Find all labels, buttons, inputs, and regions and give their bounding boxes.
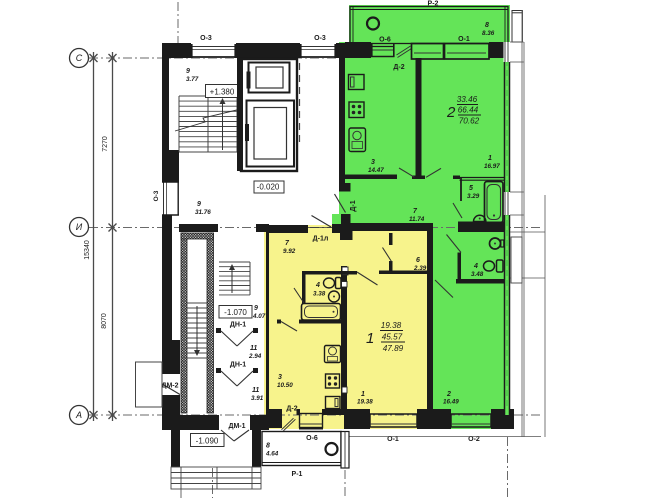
svg-text:2.94: 2.94	[248, 353, 262, 360]
svg-text:О-3: О-3	[200, 35, 212, 42]
svg-text:47.89: 47.89	[383, 344, 404, 353]
svg-text:Д-1л: Д-1л	[313, 236, 329, 243]
svg-text:А: А	[75, 410, 82, 420]
svg-text:О-1: О-1	[387, 436, 399, 443]
svg-text:11: 11	[250, 345, 257, 352]
svg-text:3: 3	[278, 374, 282, 381]
svg-text:3.48: 3.48	[471, 271, 484, 278]
svg-text:5: 5	[469, 185, 473, 192]
svg-text:Д-2: Д-2	[286, 406, 297, 413]
svg-text:31.76: 31.76	[195, 209, 211, 216]
svg-text:19.38: 19.38	[357, 399, 373, 406]
svg-text:66.44: 66.44	[458, 106, 479, 115]
svg-text:33.46: 33.46	[457, 95, 478, 104]
svg-text:ДН-1: ДН-1	[230, 322, 246, 329]
svg-text:6: 6	[416, 257, 420, 264]
svg-text:8070: 8070	[101, 313, 108, 329]
svg-text:16.49: 16.49	[443, 399, 459, 406]
svg-text:4: 4	[473, 263, 478, 270]
svg-text:9.92: 9.92	[283, 248, 296, 255]
svg-text:4.64: 4.64	[265, 451, 279, 458]
svg-text:О-6: О-6	[379, 37, 391, 44]
svg-text:45.57: 45.57	[382, 333, 403, 342]
svg-text:8: 8	[266, 443, 270, 450]
svg-text:О-3: О-3	[153, 190, 160, 201]
svg-text:О-6: О-6	[306, 435, 318, 442]
svg-text:ДН-1: ДН-1	[230, 362, 246, 369]
svg-text:3.91: 3.91	[251, 395, 264, 402]
svg-text:ДМ-1: ДМ-1	[228, 423, 245, 430]
svg-text:16.97: 16.97	[484, 163, 500, 170]
svg-text:1: 1	[361, 391, 365, 398]
svg-text:70.62: 70.62	[459, 117, 480, 126]
svg-text:14.47: 14.47	[368, 167, 384, 174]
svg-text:9: 9	[197, 201, 201, 208]
svg-text:19.38: 19.38	[381, 321, 402, 330]
svg-text:Р-1: Р-1	[292, 471, 303, 478]
svg-text:-1.070: -1.070	[224, 308, 247, 317]
svg-text:Д-2: Д-2	[393, 64, 404, 71]
svg-text:4.07: 4.07	[252, 313, 266, 320]
svg-text:11.74: 11.74	[409, 216, 425, 223]
svg-text:-1.090: -1.090	[196, 437, 219, 446]
svg-text:О-2: О-2	[468, 436, 480, 443]
svg-text:Д-1: Д-1	[350, 200, 357, 211]
svg-text:4: 4	[315, 282, 320, 289]
svg-text:3: 3	[371, 159, 375, 166]
svg-text:О-1: О-1	[458, 36, 470, 43]
svg-text:2.39: 2.39	[413, 265, 427, 272]
svg-text:11: 11	[252, 387, 259, 394]
svg-text:+1.380: +1.380	[210, 88, 235, 97]
svg-text:9: 9	[254, 305, 258, 312]
svg-text:2: 2	[446, 391, 451, 398]
svg-text:10.50: 10.50	[277, 382, 293, 389]
svg-text:О-3: О-3	[314, 35, 326, 42]
svg-text:3.77: 3.77	[186, 76, 199, 83]
svg-text:2: 2	[446, 104, 456, 121]
svg-text:3.38: 3.38	[313, 291, 326, 298]
svg-text:1: 1	[488, 155, 492, 162]
svg-text:С: С	[76, 53, 83, 63]
svg-text:8.36: 8.36	[482, 30, 495, 37]
svg-text:15340: 15340	[84, 240, 91, 260]
svg-text:-0.020: -0.020	[257, 183, 280, 192]
svg-text:Р-2: Р-2	[428, 1, 439, 8]
svg-text:ДМ-2: ДМ-2	[161, 383, 178, 390]
svg-text:9: 9	[186, 68, 190, 75]
svg-text:3.29: 3.29	[467, 193, 480, 200]
svg-text:И: И	[76, 222, 83, 232]
svg-text:1: 1	[366, 330, 374, 347]
svg-text:7270: 7270	[102, 136, 109, 152]
svg-text:8: 8	[485, 22, 489, 29]
